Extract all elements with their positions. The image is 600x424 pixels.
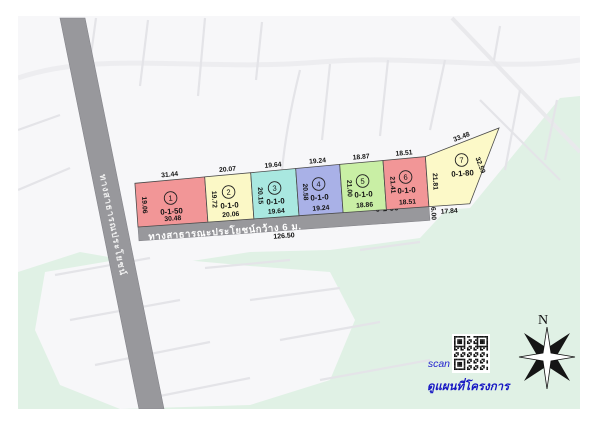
plot-number-2: 2 [226, 188, 231, 197]
qr-module [486, 346, 488, 348]
qr-module [473, 347, 475, 349]
qr-module [460, 341, 462, 343]
qr-module [483, 346, 485, 348]
qr-module [470, 347, 472, 349]
qr-module [470, 365, 472, 367]
qr-module [456, 368, 458, 370]
qr-module [480, 367, 482, 369]
qr-module [464, 338, 466, 340]
qr-module [464, 364, 466, 366]
plot-dim-left-3: 20.15 [256, 187, 264, 205]
qr-module [477, 344, 479, 346]
qr-module [482, 362, 484, 364]
qr-module [477, 354, 479, 356]
qr-module [459, 364, 461, 366]
qr-module [483, 339, 485, 341]
qr-module [460, 346, 462, 348]
qr-module [454, 355, 456, 357]
plot-number-1: 1 [168, 194, 173, 203]
plot-dim-bottom-6: 18.51 [399, 199, 417, 207]
qr-module [469, 359, 471, 361]
qr-module [456, 349, 458, 351]
plot-dim-bottom-2: 20.06 [222, 211, 240, 219]
qr-module [482, 365, 484, 367]
qr-module [467, 355, 469, 357]
qr-module [467, 336, 469, 338]
qr-module [477, 346, 479, 348]
qr-module [477, 365, 479, 367]
qr-module [457, 352, 459, 354]
qr-module [462, 359, 464, 361]
plot-dim-bottom-7: 17.84 [441, 208, 459, 216]
qr-module [477, 342, 479, 344]
qr-module [473, 341, 475, 343]
qr-module [475, 368, 477, 370]
qr-module [469, 346, 471, 348]
qr-module [464, 352, 466, 354]
qr-module [470, 359, 472, 361]
qr-module [480, 349, 482, 351]
qr-module [457, 362, 459, 364]
qr-module [469, 355, 471, 357]
qr-module [480, 368, 482, 370]
qr-module [480, 360, 482, 362]
qr-module [485, 336, 487, 338]
qr-module [454, 346, 456, 348]
qr-module [475, 355, 477, 357]
qr-module [460, 359, 462, 361]
plot-dim-left-4: 20.58 [301, 183, 309, 201]
qr-module [467, 342, 469, 344]
qr-module [470, 339, 472, 341]
qr-module [478, 336, 480, 338]
qr-module [454, 341, 456, 343]
qr-module [475, 336, 477, 338]
qr-module [475, 339, 477, 341]
plot-dim-bottom-4: 19.24 [312, 205, 330, 213]
qr-module [486, 339, 488, 341]
qr-module [483, 354, 485, 356]
qr-module [464, 339, 466, 341]
qr-module [456, 355, 458, 357]
qr-module [477, 352, 479, 354]
qr-module [477, 360, 479, 362]
qr-module [460, 336, 462, 338]
qr-module [459, 346, 461, 348]
qr-module [470, 346, 472, 348]
plot-dim-top-6: 18.51 [395, 149, 413, 157]
qr-module [467, 347, 469, 349]
qr-module [486, 347, 488, 349]
plot-number-6: 6 [403, 173, 408, 182]
qr-module [482, 349, 484, 351]
plot-area-label-7: 0-1-80 [451, 168, 475, 179]
qr-module [464, 342, 466, 344]
qr-module [454, 368, 456, 370]
qr-module [459, 365, 461, 367]
qr-module [464, 368, 466, 370]
plot-dim-left-7: 21.81 [431, 173, 439, 191]
qr-module [460, 365, 462, 367]
qr-module [460, 354, 462, 356]
qr-module [467, 341, 469, 343]
qr-module [454, 349, 456, 351]
plot-dim-left-1: 19.06 [140, 196, 148, 214]
qr-module [462, 346, 464, 348]
qr-module [460, 342, 462, 344]
qr-module [464, 344, 466, 346]
qr-module [464, 365, 466, 367]
qr-module [456, 336, 458, 338]
plot-map-canvas: ทางสาธารณประโยชน์ ทางสาธารณะประโยชน์กว้า… [0, 0, 600, 424]
qr-module [486, 336, 488, 338]
qr-module [464, 347, 466, 349]
qr-module [480, 355, 482, 357]
plot-area-label-5: 0-1-0 [354, 189, 373, 199]
qr-module [477, 359, 479, 361]
qr-module [470, 352, 472, 354]
qr-module [459, 368, 461, 370]
plot-dim-top-1: 31.44 [161, 171, 179, 179]
qr-module [470, 367, 472, 369]
qr-module [486, 341, 488, 343]
qr-module [475, 365, 477, 367]
qr-module [457, 346, 459, 348]
qr-module [464, 336, 466, 338]
qr-module [477, 367, 479, 369]
plot-number-3: 3 [272, 184, 277, 193]
qr-module [470, 354, 472, 356]
qr-module [483, 360, 485, 362]
qr-module [473, 342, 475, 344]
qr-module [457, 354, 459, 356]
plot-dim-left-6: 21.41 [388, 176, 396, 194]
plot-dim-left-5: 21.00 [345, 180, 353, 198]
qr-module [475, 359, 477, 361]
qr-module [464, 362, 466, 364]
qr-module [482, 352, 484, 354]
qr-module [486, 338, 488, 340]
plot-area-label-4: 0-1-0 [310, 192, 329, 202]
qr-module [457, 336, 459, 338]
qr-module [464, 341, 466, 343]
plot-area-label-2: 0-1-0 [220, 200, 239, 210]
qr-module [457, 342, 459, 344]
qr-module [482, 346, 484, 348]
plot-dim-top-2: 20.07 [219, 166, 237, 174]
qr-module [457, 339, 459, 341]
qr-module [462, 336, 464, 338]
main-road-end-width-label: 6.00 [429, 207, 437, 221]
qr-module [473, 362, 475, 364]
qr-module [467, 349, 469, 351]
qr-module [473, 354, 475, 356]
plot-map-page: ทางสาธารณประโยชน์ ทางสาธารณะประโยชน์กว้า… [0, 0, 600, 424]
qr-module [470, 360, 472, 362]
qr-module [469, 368, 471, 370]
plot-dim-bottom-5: 18.86 [356, 202, 374, 210]
qr-scan-label: scan [428, 358, 450, 370]
qr-module [456, 359, 458, 361]
qr-module [483, 341, 485, 343]
qr-module [457, 359, 459, 361]
qr-module [464, 346, 466, 348]
qr-module [457, 364, 459, 366]
qr-module [477, 336, 479, 338]
qr-module [477, 338, 479, 340]
qr-module [460, 339, 462, 341]
qr-module [464, 367, 466, 369]
qr-module [459, 342, 461, 344]
qr-module [477, 347, 479, 349]
qr-module [483, 336, 485, 338]
qr-module [486, 344, 488, 346]
qr-module [480, 346, 482, 348]
qr-module [469, 336, 471, 338]
qr-module [460, 368, 462, 370]
plot-number-4: 4 [316, 180, 321, 189]
qr-module [467, 367, 469, 369]
qr-module [470, 341, 472, 343]
qr-module [454, 360, 456, 362]
qr-module [483, 365, 485, 367]
plot-number-7: 7 [459, 156, 464, 165]
qr-module [454, 344, 456, 346]
qr-module [483, 352, 485, 354]
qr-module [457, 347, 459, 349]
qr-module [467, 362, 469, 364]
qr-module [467, 368, 469, 370]
main-road-length-label: 126.50 [273, 232, 295, 240]
qr-module [483, 347, 485, 349]
qr-module [473, 336, 475, 338]
qr-module [460, 355, 462, 357]
qr-module [486, 355, 488, 357]
qr-module [486, 362, 488, 364]
qr-module [483, 359, 485, 361]
qr-module [459, 339, 461, 341]
plot-dim-bottom-3: 19.64 [268, 208, 286, 216]
qr-module [469, 349, 471, 351]
qr-module [464, 359, 466, 361]
compass-north-label: N [538, 313, 548, 328]
qr-module [482, 336, 484, 338]
qr-module [454, 339, 456, 341]
qr-module [473, 355, 475, 357]
qr-module [482, 341, 484, 343]
qr-module [454, 365, 456, 367]
qr-module [482, 339, 484, 341]
qr-module [486, 360, 488, 362]
qr-module [457, 368, 459, 370]
plot-number-5: 5 [360, 177, 365, 186]
qr-module [482, 342, 484, 344]
qr-module [483, 367, 485, 369]
qr-module [469, 342, 471, 344]
qr-module [454, 367, 456, 369]
qr-module [480, 342, 482, 344]
qr-module [483, 342, 485, 344]
qr-module [480, 339, 482, 341]
qr-module [460, 364, 462, 366]
qr-module [486, 354, 488, 356]
qr-module [457, 341, 459, 343]
qr-module [459, 336, 461, 338]
plot-dim-top-5: 18.87 [352, 153, 370, 161]
qr-module [486, 342, 488, 344]
qr-module [456, 346, 458, 348]
plot-area-label-3: 0-1-0 [266, 196, 285, 206]
plot-area-label-1: 0-1-50 [160, 206, 184, 217]
qr-module [464, 360, 466, 362]
qr-module [454, 354, 456, 356]
qr-module [477, 339, 479, 341]
qr-module [460, 347, 462, 349]
qr-module [473, 368, 475, 370]
qr-module [473, 367, 475, 369]
qr-module [459, 341, 461, 343]
qr-module [480, 362, 482, 364]
qr-module [460, 362, 462, 364]
qr-module [464, 354, 466, 356]
plot-dim-left-2: 19.72 [210, 191, 218, 209]
qr-module [480, 354, 482, 356]
qr-module [462, 355, 464, 357]
qr-module [454, 359, 456, 361]
qr-module [475, 346, 477, 348]
qr-module [454, 336, 456, 338]
qr-module [486, 368, 488, 370]
qr-module [482, 355, 484, 357]
qr-module [480, 347, 482, 349]
qr-module [469, 352, 471, 354]
plot-dim-top-4: 19.24 [309, 157, 327, 165]
qr-module [473, 349, 475, 351]
qr-module [462, 349, 464, 351]
qr-module [469, 365, 471, 367]
qr-module [460, 349, 462, 351]
qr-module [482, 359, 484, 361]
qr-module [480, 336, 482, 338]
qr-module [459, 359, 461, 361]
qr-module [462, 352, 464, 354]
qr-module [478, 346, 480, 348]
qr-module [462, 368, 464, 370]
qr-module [480, 341, 482, 343]
qr-module [475, 342, 477, 344]
plot-dim-top-3: 19.64 [264, 161, 282, 169]
qr-module [475, 349, 477, 351]
qr-module [454, 342, 456, 344]
qr-module [454, 364, 456, 366]
qr-module [454, 347, 456, 349]
qr-module [475, 352, 477, 354]
qr-module [473, 360, 475, 362]
qr-module [457, 365, 459, 367]
qr-module [469, 362, 471, 364]
qr-module [456, 352, 458, 354]
qr-module [486, 349, 488, 351]
qr-module [486, 367, 488, 369]
qr-module [485, 346, 487, 348]
plot-area-label-6: 0-1-0 [397, 185, 416, 195]
qr-module [467, 360, 469, 362]
qr-module [454, 362, 456, 364]
qr-module [459, 362, 461, 364]
qr-module [475, 362, 477, 364]
qr-module [469, 339, 471, 341]
qr-module [454, 338, 456, 340]
qr-module [477, 341, 479, 343]
qr-module [482, 368, 484, 370]
qr-module [467, 354, 469, 356]
